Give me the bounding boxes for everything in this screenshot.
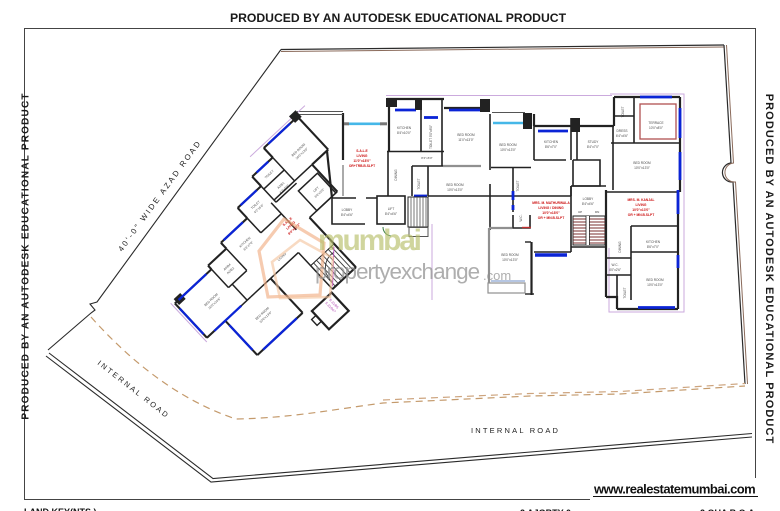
svg-text:TOILET: TOILET bbox=[417, 178, 421, 189]
svg-text:INTERNAL ROAD: INTERNAL ROAD bbox=[471, 426, 560, 435]
svg-text:propertyexchange: propertyexchange bbox=[315, 259, 480, 284]
svg-text:TOILET 5'0"x8'0": TOILET 5'0"x8'0" bbox=[429, 125, 433, 149]
svg-text:8'4"x4'6": 8'4"x4'6" bbox=[341, 213, 353, 217]
svg-text:PRODUCED BY AN AUTODESK EDUCAT: PRODUCED BY AN AUTODESK EDUCATIONAL PROD… bbox=[763, 94, 775, 445]
svg-text:PRODUCED BY AN AUTODESK EDUCAT: PRODUCED BY AN AUTODESK EDUCATIONAL PROD… bbox=[230, 11, 567, 25]
svg-text:8'4"x7'0": 8'4"x7'0" bbox=[587, 145, 599, 149]
svg-text:DINING: DINING bbox=[394, 169, 398, 181]
svg-text:TOILET: TOILET bbox=[623, 287, 627, 298]
svg-text:BED ROOM: BED ROOM bbox=[499, 143, 517, 147]
svg-text:BED ROOM: BED ROOM bbox=[501, 253, 519, 257]
svg-text:KITCHEN: KITCHEN bbox=[646, 240, 661, 244]
svg-text:W.C.: W.C. bbox=[519, 214, 523, 221]
svg-text:STUDY: STUDY bbox=[588, 140, 600, 144]
svg-text:40'-0" WIDE AZAD ROAD: 40'-0" WIDE AZAD ROAD bbox=[116, 138, 203, 253]
svg-text:8'6"x7'0": 8'6"x7'0" bbox=[545, 145, 557, 149]
svg-text:LOBBY: LOBBY bbox=[342, 208, 354, 212]
svg-text:DRESS: DRESS bbox=[617, 129, 628, 133]
svg-text:TOILET: TOILET bbox=[516, 180, 520, 191]
svg-text:10'0"x13'0": 10'0"x13'0" bbox=[500, 148, 516, 152]
svg-text:BED ROOM: BED ROOM bbox=[446, 183, 464, 187]
svg-text:BED ROOM: BED ROOM bbox=[633, 161, 651, 165]
svg-text:10'0"x13'0": 10'0"x13'0" bbox=[647, 283, 663, 287]
svg-text:S.A.L.E: S.A.L.E bbox=[356, 149, 368, 153]
svg-text:UP: UP bbox=[578, 210, 582, 214]
svg-text:DINING: DINING bbox=[618, 241, 622, 253]
svg-text:11'0"x18'0": 11'0"x18'0" bbox=[353, 159, 371, 163]
svg-text:11'0"x13'0": 11'0"x13'0" bbox=[458, 138, 473, 142]
svg-text:4'0"x2'6": 4'0"x2'6" bbox=[609, 268, 621, 272]
svg-text:mumbai: mumbai bbox=[318, 224, 421, 257]
svg-text:10'0"x8'0": 10'0"x8'0" bbox=[649, 126, 663, 130]
svg-text:W.C.: W.C. bbox=[612, 263, 619, 267]
svg-text:LIVING: LIVING bbox=[636, 203, 647, 207]
svg-text:DN: DN bbox=[595, 210, 599, 214]
svg-text:www.realestatemumbai.com: www.realestatemumbai.com bbox=[593, 482, 755, 497]
svg-text:8'4"x4'6": 8'4"x4'6" bbox=[582, 202, 594, 206]
svg-text:10'0"x18'0": 10'0"x18'0" bbox=[542, 211, 560, 215]
svg-text:TOILET: TOILET bbox=[264, 169, 275, 180]
svg-text:10'0"x13'0": 10'0"x13'0" bbox=[447, 188, 463, 192]
svg-text:6'4"x4'6": 6'4"x4'6" bbox=[616, 134, 628, 138]
svg-text:OR + MN.B.SLPT: OR + MN.B.SLPT bbox=[628, 213, 654, 217]
svg-text:MRS. M. MATHURWALA: MRS. M. MATHURWALA bbox=[532, 201, 570, 205]
svg-text:10'0"x13'0": 10'0"x13'0" bbox=[502, 258, 518, 262]
svg-text:MRS. M. KANJAL: MRS. M. KANJAL bbox=[627, 198, 654, 202]
svg-text:INTERNAL ROAD: INTERNAL ROAD bbox=[96, 358, 172, 420]
svg-text:BED ROOM: BED ROOM bbox=[646, 278, 664, 282]
svg-text:10'0"x13'0": 10'0"x13'0" bbox=[634, 166, 650, 170]
svg-text:KITCHEN: KITCHEN bbox=[544, 140, 559, 144]
svg-text:8'4"x4'6": 8'4"x4'6" bbox=[385, 212, 397, 216]
svg-text:LOBBY: LOBBY bbox=[583, 197, 595, 201]
svg-text:TOILET: TOILET bbox=[621, 106, 625, 117]
svg-text:OR + MN.B.SLPT: OR + MN.B.SLPT bbox=[538, 216, 564, 220]
svg-text:OR+TRB.B.SLPT: OR+TRB.B.SLPT bbox=[349, 164, 375, 168]
svg-text:LAND KEY(NTS.): LAND KEY(NTS.) bbox=[24, 507, 97, 511]
svg-text:BED ROOM: BED ROOM bbox=[457, 133, 475, 137]
svg-text:TERRACE: TERRACE bbox=[648, 121, 663, 125]
svg-text:LIVING / DINING: LIVING / DINING bbox=[538, 206, 564, 210]
svg-text:PRODUCED BY AN AUTODESK EDUCAT: PRODUCED BY AN AUTODESK EDUCATIONAL PROD… bbox=[21, 92, 32, 419]
svg-text:8'4"x6'0": 8'4"x6'0" bbox=[421, 156, 432, 160]
svg-text:10'0"x13'0": 10'0"x13'0" bbox=[632, 208, 650, 212]
svg-text:KITCHEN: KITCHEN bbox=[397, 126, 412, 130]
svg-text:8'4"x10'0": 8'4"x10'0" bbox=[397, 131, 411, 135]
svg-text:.com: .com bbox=[483, 268, 511, 283]
svg-text:LIFT: LIFT bbox=[388, 207, 395, 211]
svg-text:8'6"x7'0": 8'6"x7'0" bbox=[647, 245, 659, 249]
svg-text:LIVING: LIVING bbox=[357, 154, 368, 158]
